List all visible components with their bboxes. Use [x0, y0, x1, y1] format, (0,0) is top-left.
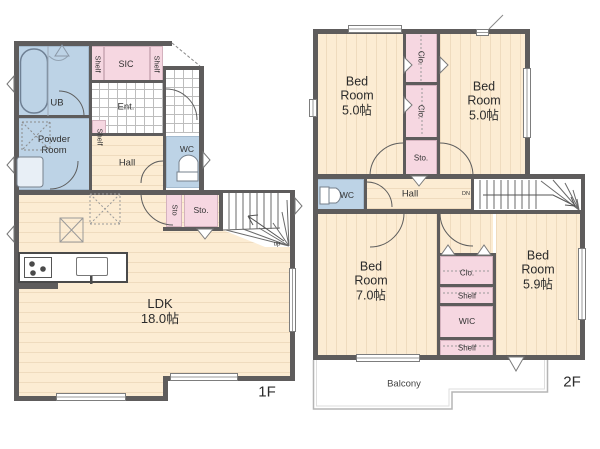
label-hall-1f: Hall [119, 159, 135, 170]
label-bed-nw: Bed Room 5.0帖 [340, 74, 373, 117]
label-shelf-bottom-2f: Shelf [458, 343, 476, 352]
floor2-label: 2F [563, 373, 581, 390]
floor1-label: 1F [258, 383, 276, 400]
label-clo-mid: Clo. [416, 105, 425, 119]
label-bed-sw: Bed Room 7.0帖 [354, 259, 387, 302]
label-wc-1f: WC [180, 145, 194, 155]
toilet-1f-icon [177, 155, 198, 181]
label-sto-1f: Sto. [193, 206, 208, 216]
label-ldk: LDK 18.0帖 [141, 297, 179, 327]
label-bed-se: Bed Room 5.9帖 [521, 248, 554, 291]
toilet-2f-icon [320, 187, 341, 204]
label-shelf-top-2f: Shelf [458, 291, 476, 300]
label-wic: WIC [459, 317, 476, 327]
label-shelf-c: Shelf [95, 128, 104, 145]
balcony-outline [314, 360, 548, 409]
label-shelf-b: Shelf [152, 55, 161, 72]
burner-dots [29, 261, 92, 284]
label-clo-2f: Clo. [460, 268, 474, 277]
stairs-1f-icon [223, 193, 290, 247]
plan-annotations [0, 0, 600, 449]
label-balcony: Balcony [387, 380, 421, 391]
label-wc-2f: WC [340, 191, 354, 201]
floorplan-canvas: UB Shelf SIC Shelf Ent. Powder Room Shel… [0, 0, 600, 449]
label-sto-2f: Sto. [414, 153, 428, 162]
label-bed-ne: Bed Room 5.0帖 [467, 79, 500, 122]
label-hall-2f: Hall [402, 190, 418, 201]
label-shelf-a: Shelf [93, 55, 102, 72]
label-clo-top: Clo. [416, 51, 425, 65]
label-dn: DN [462, 191, 470, 197]
label-ent: Ent. [118, 103, 135, 114]
label-ub: UB [50, 99, 63, 110]
misc-lines [172, 15, 503, 66]
stairs-2f-icon [474, 179, 581, 210]
label-sic: SIC [118, 59, 133, 69]
label-powder: Powder Room [38, 135, 70, 157]
label-up: up [274, 242, 281, 249]
floor-hatch-icons [60, 194, 120, 242]
label-sto-small-1f: Sto [170, 204, 179, 215]
